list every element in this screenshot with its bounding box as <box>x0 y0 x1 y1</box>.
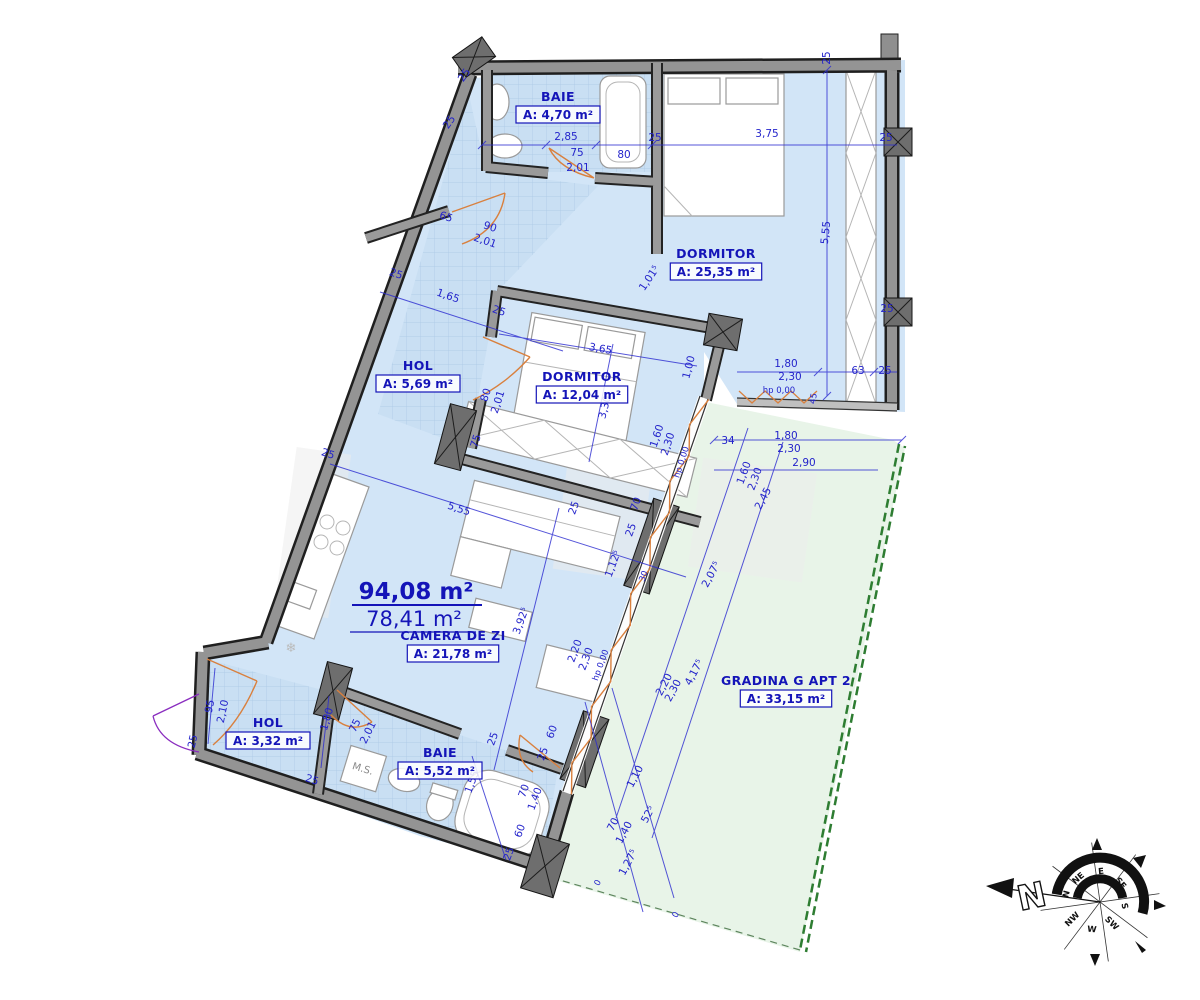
room-area: A: 5,52 m² <box>405 764 475 778</box>
compass-label-nw: NW <box>1063 910 1082 929</box>
useful-area: 78,41 m² <box>366 607 462 631</box>
compass-label-n: N <box>1061 890 1073 899</box>
room-name: BAIE <box>541 89 575 104</box>
dim-label: 75 <box>570 147 583 159</box>
dim-label: 2,30 <box>778 371 801 383</box>
dim-label: 2,01 <box>566 162 589 174</box>
room-area: A: 3,32 m² <box>233 734 303 748</box>
dim-label: 63 <box>851 365 864 377</box>
dim-label: 34 <box>721 435 735 447</box>
pillow <box>726 78 778 104</box>
room-area: A: 33,15 m² <box>747 692 825 706</box>
room-name: HOL <box>253 715 283 730</box>
room-area: A: 25,35 m² <box>677 265 755 279</box>
dim-label: 25 <box>880 303 893 315</box>
dim-label: 45 <box>808 392 820 404</box>
room-name: HOL <box>403 358 433 373</box>
dim-label: hp 0,00 <box>763 386 795 396</box>
dim-label: 1,80 <box>774 358 797 370</box>
floor-plan-svg: ❄ M.S. <box>0 0 1200 1000</box>
dim-label: 25 <box>879 132 892 144</box>
dim-label: 25 <box>821 51 833 64</box>
compass-label-w: W <box>1087 925 1098 936</box>
room-area: A: 4,70 m² <box>523 108 593 122</box>
dim-label: 25 <box>878 365 891 377</box>
dim-label: 25 <box>648 132 661 144</box>
room-name: GRADINA G APT 2 <box>721 673 851 688</box>
dim-label: 1,80 <box>774 430 797 442</box>
pillow <box>668 78 720 104</box>
compass-big-n: N <box>1014 874 1050 919</box>
dim-label: 2,90 <box>792 457 815 469</box>
dim-label: 2,30 <box>777 443 800 455</box>
room-area: A: 21,78 m² <box>414 647 492 661</box>
compass-label-sw: SW <box>1102 915 1120 933</box>
wall-post <box>703 313 742 350</box>
floor-plan-page: ❄ M.S. <box>0 0 1200 1000</box>
room-area: A: 5,69 m² <box>383 377 453 391</box>
room-name: DORMITOR <box>676 246 756 261</box>
dim-label: 3,75 <box>755 128 778 140</box>
compass-north-arrow <box>986 878 1014 898</box>
toilet-top <box>488 134 522 158</box>
room-name: BAIE <box>423 745 457 760</box>
room-name: DORMITOR <box>542 369 622 384</box>
dim-label: 2,85 <box>554 131 577 143</box>
room-area: A: 12,04 m² <box>543 388 621 402</box>
fridge-icon: ❄ <box>286 641 297 656</box>
compass-label-e: E <box>1098 867 1105 877</box>
compass-label-s: S <box>1118 902 1129 910</box>
closet-hatch-right <box>846 70 876 404</box>
dim-label: 5,55 <box>819 220 833 245</box>
dim-label: 80 <box>617 149 630 161</box>
total-area: 94,08 m² <box>359 579 474 605</box>
compass-rose: N N NE E SE S SW W NW <box>986 834 1168 970</box>
